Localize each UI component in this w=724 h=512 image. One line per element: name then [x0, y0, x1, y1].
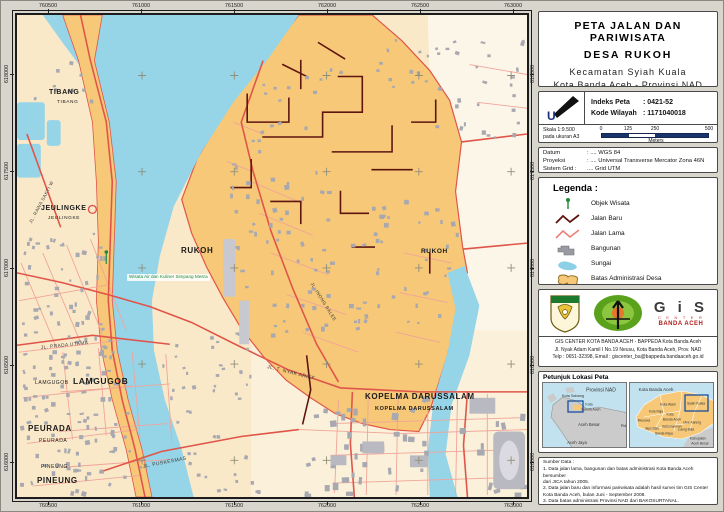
- building: [423, 292, 427, 295]
- inset-label: Aceh Jaya: [567, 441, 587, 445]
- legend-item-label: Objek Wisata: [591, 200, 630, 207]
- legend-box: Legenda : Objek WisataJalan BaruJalan La…: [538, 177, 718, 285]
- building: [52, 471, 55, 476]
- building: [270, 124, 274, 127]
- grid-tick: [141, 501, 142, 505]
- building: [57, 449, 60, 452]
- inset-label: Syiah Kuala: [687, 402, 705, 405]
- building: [51, 373, 56, 377]
- building: [271, 333, 276, 337]
- building: [217, 435, 220, 438]
- building: [33, 308, 38, 311]
- building: [237, 246, 240, 250]
- building: [64, 448, 66, 453]
- building: [280, 218, 283, 221]
- inset-label: Banda Aceh: [663, 418, 681, 421]
- building: [75, 341, 79, 344]
- building: [75, 322, 80, 327]
- grid-tick: [530, 365, 534, 366]
- index-box: U Indeks Peta: 0421-52 Kode Wilayah: 117…: [538, 91, 718, 143]
- building: [67, 467, 71, 470]
- building: [339, 71, 343, 73]
- datum-row: Proyeksi: .... Universal Transverse Merc…: [543, 158, 713, 166]
- building: [24, 397, 28, 402]
- grid-tick: [234, 9, 235, 13]
- building: [50, 311, 53, 315]
- inset-label: Kota Sabang: [562, 395, 584, 399]
- gis-wordmark-city: BANDA ACEH: [654, 321, 708, 327]
- building: [435, 208, 439, 211]
- building: [384, 223, 389, 228]
- building: [43, 464, 47, 467]
- kode-wilayah-label: Kode Wilayah: [591, 110, 643, 117]
- building: [515, 493, 522, 497]
- building: [32, 246, 35, 250]
- datum-label: Sistem Grid :: [543, 166, 587, 173]
- building: [60, 244, 62, 246]
- scale-tick-label: 250: [651, 126, 659, 132]
- building: [78, 421, 82, 423]
- building: [46, 396, 49, 399]
- jalan-lama-icon: [553, 227, 583, 241]
- building: [211, 346, 214, 349]
- inset-label: Kota: [585, 403, 592, 407]
- building: [81, 321, 84, 325]
- building: [285, 330, 288, 333]
- building: [349, 304, 354, 308]
- building: [308, 290, 313, 294]
- building: [351, 244, 356, 248]
- north-arrow-cell: U: [539, 92, 585, 124]
- building: [84, 382, 88, 385]
- building: [129, 450, 131, 452]
- building: [394, 432, 400, 437]
- building: [351, 473, 354, 478]
- building: [425, 259, 428, 262]
- legend-item: Jalan Lama: [553, 226, 717, 241]
- building: [456, 233, 459, 237]
- building: [66, 462, 70, 466]
- building: [101, 397, 106, 402]
- inset-label: Kota Banda Aceh: [639, 388, 674, 393]
- building: [362, 462, 367, 467]
- building: [32, 406, 36, 410]
- legend-item: Sungai: [553, 256, 717, 271]
- building: [79, 340, 82, 342]
- building: [176, 421, 179, 424]
- building: [481, 443, 484, 449]
- scale-paper: pada ukuran A3: [543, 134, 595, 141]
- building: [285, 210, 289, 215]
- building: [139, 466, 142, 468]
- building: [392, 295, 396, 298]
- building: [36, 242, 41, 244]
- building: [90, 99, 94, 103]
- building: [387, 216, 390, 219]
- building: [269, 223, 273, 228]
- building: [126, 412, 130, 414]
- building: [346, 492, 353, 496]
- building: [424, 211, 429, 215]
- bappeda-logo: [592, 293, 644, 333]
- building: [235, 210, 238, 213]
- building: [51, 434, 55, 437]
- inset-label: Kuta Alam: [660, 403, 675, 406]
- building: [102, 371, 106, 376]
- building: [56, 69, 60, 73]
- building: [374, 232, 378, 236]
- building: [100, 256, 102, 261]
- legend-item-label: Batas Administrasi Desa: [591, 275, 661, 282]
- building: [68, 335, 71, 338]
- grid-tick: [530, 268, 534, 269]
- building: [323, 408, 328, 413]
- building: [86, 425, 89, 430]
- building: [321, 327, 325, 332]
- inset-label: Meuraxa: [638, 419, 650, 422]
- building: [67, 413, 71, 415]
- building: [354, 453, 357, 459]
- building: [435, 125, 439, 128]
- building: [162, 364, 164, 368]
- building: [33, 365, 36, 369]
- building: [447, 267, 451, 269]
- building: [392, 86, 395, 88]
- building: [325, 485, 330, 491]
- building: [496, 421, 499, 427]
- building: [213, 389, 216, 392]
- grid-tick: [327, 9, 328, 13]
- building: [252, 140, 255, 142]
- building: [266, 240, 268, 243]
- map-subtitle-line1: Kecamatan Syiah Kuala: [539, 67, 717, 77]
- scale-tick-label: 0: [600, 126, 603, 132]
- building: [363, 302, 367, 304]
- building: [27, 242, 30, 246]
- building: [52, 350, 57, 354]
- building: [123, 476, 126, 479]
- building: [425, 80, 428, 82]
- building: [354, 321, 357, 324]
- building: [85, 440, 91, 445]
- building: [94, 336, 96, 341]
- building: [235, 166, 238, 170]
- building: [114, 383, 119, 385]
- north-label: U: [547, 109, 556, 123]
- building: [376, 69, 379, 72]
- building: [189, 411, 192, 415]
- scale-tick-label: 500: [705, 126, 713, 132]
- building: [87, 416, 90, 419]
- agency-line1: GIS CENTER KOTA BANDA ACEH - BAPPEDA Kot…: [541, 339, 715, 347]
- building: [85, 315, 89, 320]
- inset-label: Aceh Besar: [691, 442, 709, 445]
- building: [64, 353, 67, 356]
- building: [55, 287, 59, 290]
- building: [306, 328, 309, 331]
- batas-administrasi-icon: [553, 272, 583, 286]
- grid-tick: [48, 501, 49, 505]
- bangunan-icon: [553, 242, 583, 256]
- building: [487, 134, 491, 137]
- building: [455, 104, 459, 108]
- building: [341, 414, 345, 421]
- building: [358, 319, 360, 323]
- building: [274, 325, 277, 327]
- building: [99, 471, 104, 474]
- building: [376, 239, 380, 243]
- building: [230, 194, 233, 199]
- title-box: PETA JALAN DAN PARIWISATA DESA RUKOH Kec…: [538, 11, 718, 87]
- legend-item: Bangunan: [553, 241, 717, 256]
- building: [78, 463, 81, 467]
- grid-tick: [420, 9, 421, 13]
- building: [314, 414, 320, 418]
- building: [73, 469, 77, 473]
- building: [123, 435, 126, 438]
- building: [512, 109, 516, 112]
- building: [111, 434, 114, 436]
- building: [76, 351, 81, 355]
- building: [24, 387, 28, 390]
- grid-tick: [10, 268, 14, 269]
- building: [312, 306, 316, 310]
- grid-tick: [10, 462, 14, 463]
- building: [197, 473, 201, 476]
- building: [99, 247, 103, 249]
- locator-inset-city: Kota Banda AcehKuta AlamSyiah KualaKuta …: [629, 382, 714, 448]
- grid-tick: [10, 365, 14, 366]
- inset-label: Kabupaten: [690, 437, 706, 440]
- building: [47, 305, 50, 307]
- building: [322, 249, 326, 251]
- building: [25, 282, 29, 286]
- building: [66, 393, 70, 397]
- building: [284, 185, 290, 191]
- grid-tick: [234, 501, 235, 505]
- building: [103, 256, 106, 261]
- grid-tick: [513, 9, 514, 13]
- building: [273, 304, 277, 307]
- building: [487, 54, 490, 57]
- building: [404, 200, 409, 205]
- map-title-line1: PETA JALAN DAN PARIWISATA: [539, 20, 717, 44]
- jalan-baru-icon: [553, 212, 583, 226]
- building: [424, 249, 428, 252]
- building: [256, 199, 260, 204]
- building: [49, 355, 53, 360]
- agency-box: G i S C E N T E R BANDA ACEH GIS CENTER …: [538, 289, 718, 367]
- building: [35, 454, 38, 458]
- legend-title: Legenda :: [553, 183, 717, 194]
- map-canvas: [17, 15, 527, 497]
- building: [344, 444, 349, 449]
- building: [451, 221, 456, 227]
- building: [22, 322, 25, 325]
- inset-label: Banda Aceh: [582, 408, 601, 412]
- indeks-peta-value: : 0421-52: [643, 99, 673, 106]
- building: [34, 331, 38, 333]
- building: [33, 395, 37, 398]
- source-line: 3. Data batas administrasi Provinsi NAD …: [543, 499, 713, 505]
- building: [72, 310, 75, 313]
- building: [326, 294, 330, 298]
- kode-wilayah-value: : 1171040018: [643, 110, 686, 117]
- building: [194, 452, 197, 455]
- building: [377, 268, 379, 270]
- datum-box: Datum: .... WGS 84Proyeksi: .... Univers…: [538, 147, 718, 173]
- grid-tick: [327, 501, 328, 505]
- grid-tick: [530, 171, 534, 172]
- building: [28, 265, 32, 270]
- building: [170, 396, 173, 400]
- building: [187, 452, 190, 455]
- datum-value: : .... Universal Transverse Mercator Zon…: [587, 158, 704, 166]
- building: [438, 314, 441, 318]
- building: [81, 288, 84, 292]
- agency-line2: Jl. Nyak Adam Kamil I No.19 Neusu, Kota …: [541, 347, 715, 355]
- building: [258, 139, 261, 142]
- building: [446, 245, 449, 249]
- banda-aceh-crest-logo: [548, 293, 582, 333]
- scale-unit: Meters: [595, 138, 717, 143]
- building: [377, 304, 380, 308]
- building: [232, 163, 236, 165]
- source-line: 1. Data jalan lama, bangunan dan batas a…: [543, 467, 713, 480]
- building: [50, 238, 52, 242]
- building: [477, 449, 485, 455]
- inset-label: Provinsi NAD: [586, 389, 616, 394]
- building: [186, 372, 188, 375]
- building: [172, 389, 174, 392]
- scale-text: Skala 1:9.500: [543, 127, 595, 134]
- building: [69, 280, 71, 282]
- building: [262, 84, 265, 86]
- building: [404, 287, 406, 291]
- gis-wordmark-text: G i S: [654, 299, 708, 316]
- building: [276, 239, 279, 242]
- building: [38, 308, 41, 311]
- building: [312, 288, 316, 291]
- scale-row: Skala 1:9.500 pada ukuran A3 0125250500 …: [539, 124, 717, 142]
- building: [305, 76, 309, 79]
- locator-box: Petunjuk Lokasi Peta Provinsi NADKota Sa…: [538, 371, 718, 453]
- building: [424, 396, 430, 401]
- building: [254, 232, 257, 237]
- building: [379, 62, 383, 65]
- building: [408, 437, 415, 443]
- locator-title: Petunjuk Lokasi Peta: [543, 374, 717, 381]
- building: [273, 87, 276, 90]
- indeks-peta-label: Indeks Peta: [591, 99, 643, 106]
- north-arrow-icon: [539, 92, 583, 122]
- building: [446, 48, 450, 50]
- building: [301, 197, 304, 201]
- building: [271, 270, 274, 275]
- building: [204, 476, 207, 479]
- building: [347, 408, 352, 412]
- building: [245, 286, 249, 288]
- building: [240, 270, 245, 273]
- building: [246, 384, 248, 386]
- grid-tick: [48, 9, 49, 13]
- building: [510, 83, 513, 86]
- building: [457, 98, 461, 103]
- inset-label: Pidie: [621, 425, 627, 429]
- building: [56, 463, 59, 468]
- building: [347, 432, 352, 439]
- building: [460, 428, 467, 434]
- scale-bar: 0125250500 Meters: [595, 125, 717, 142]
- inset-label: Aceh Besar: [578, 423, 600, 427]
- map-title-line2: DESA RUKOH: [539, 49, 717, 61]
- gis-center-wordmark: G i S C E N T E R BANDA ACEH: [654, 300, 708, 327]
- building: [286, 231, 290, 235]
- building: [333, 483, 339, 490]
- building: [62, 384, 64, 388]
- building: [95, 439, 98, 443]
- building: [107, 370, 111, 372]
- building: [310, 258, 313, 261]
- building: [477, 103, 480, 106]
- building: [326, 219, 330, 222]
- grid-tick: [513, 501, 514, 505]
- building: [53, 85, 56, 88]
- building: [42, 396, 45, 400]
- building: [249, 375, 251, 379]
- building: [94, 414, 99, 416]
- building: [313, 91, 317, 95]
- gis-wordmark-center: C E N T E R: [654, 316, 708, 320]
- building: [86, 374, 89, 377]
- building: [517, 122, 520, 125]
- building: [418, 221, 420, 223]
- building: [376, 271, 379, 275]
- building: [391, 413, 398, 421]
- building: [271, 178, 275, 182]
- building: [422, 441, 426, 447]
- legend-item-label: Bangunan: [591, 245, 621, 252]
- building: [437, 52, 440, 55]
- building: [403, 434, 407, 441]
- inset-label: Kota: [667, 413, 674, 416]
- map-subtitle-line2: Kota Banda Aceh - Provinsi NAD: [539, 80, 717, 87]
- datum-label: Datum: [543, 150, 587, 158]
- datum-row: Datum: .... WGS 84: [543, 150, 713, 158]
- building: [235, 392, 238, 395]
- building: [512, 133, 516, 138]
- building: [251, 481, 254, 485]
- building: [100, 349, 104, 353]
- building: [427, 55, 429, 58]
- building: [29, 397, 32, 400]
- grid-tick: [141, 9, 142, 13]
- building: [304, 126, 307, 130]
- locator-inset-province: Provinsi NADKota SabangKotaBanda AcehAce…: [542, 382, 627, 448]
- source-line: 2. Data jalan baru dan informasi pariwis…: [543, 486, 713, 492]
- building: [76, 253, 80, 257]
- building: [216, 374, 220, 377]
- building: [356, 307, 361, 309]
- building: [108, 339, 111, 342]
- building: [79, 435, 83, 439]
- building: [75, 302, 77, 306]
- building: [320, 78, 323, 81]
- info-panel: PETA JALAN DAN PARIWISATA DESA RUKOH Kec…: [538, 1, 718, 512]
- legend-item: Objek Wisata: [553, 196, 717, 211]
- building: [363, 419, 366, 427]
- building: [69, 305, 73, 310]
